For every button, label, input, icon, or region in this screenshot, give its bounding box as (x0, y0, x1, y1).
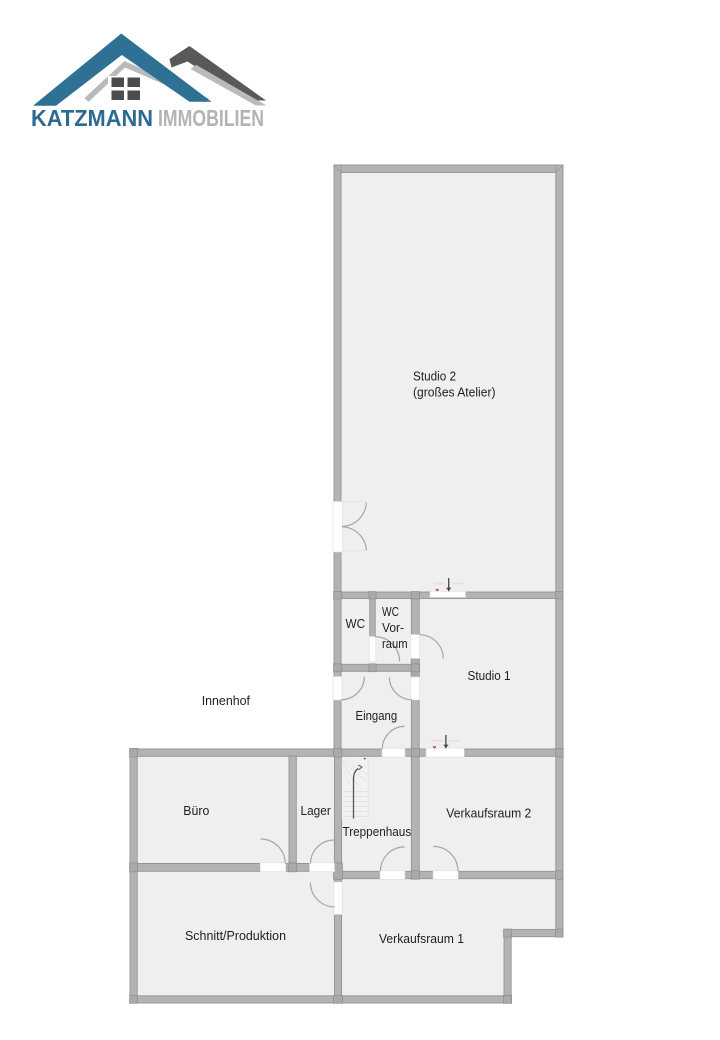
svg-text:raum: raum (382, 636, 408, 651)
svg-text:Verkaufsraum 2: Verkaufsraum 2 (446, 806, 531, 821)
svg-text:WC: WC (382, 604, 399, 619)
svg-text:Schnitt/Produktion: Schnitt/Produktion (185, 928, 286, 943)
svg-text:Studio 2: Studio 2 (413, 369, 456, 384)
svg-text:Vor-: Vor- (382, 620, 404, 635)
svg-text:KATZMANN: KATZMANN (31, 105, 153, 131)
svg-text:IMMOBILIEN: IMMOBILIEN (158, 105, 264, 131)
svg-text:WC: WC (346, 616, 366, 631)
svg-text:Studio 1: Studio 1 (468, 668, 511, 683)
svg-text:(großes Atelier): (großes Atelier) (413, 385, 496, 400)
svg-text:Verkaufsraum 1: Verkaufsraum 1 (379, 931, 464, 946)
svg-text:Treppenhaus: Treppenhaus (343, 824, 412, 839)
svg-text:Lager: Lager (301, 803, 332, 818)
svg-text:Eingang: Eingang (356, 708, 398, 723)
svg-text:Innenhof: Innenhof (202, 693, 251, 708)
svg-text:Büro: Büro (183, 803, 209, 818)
